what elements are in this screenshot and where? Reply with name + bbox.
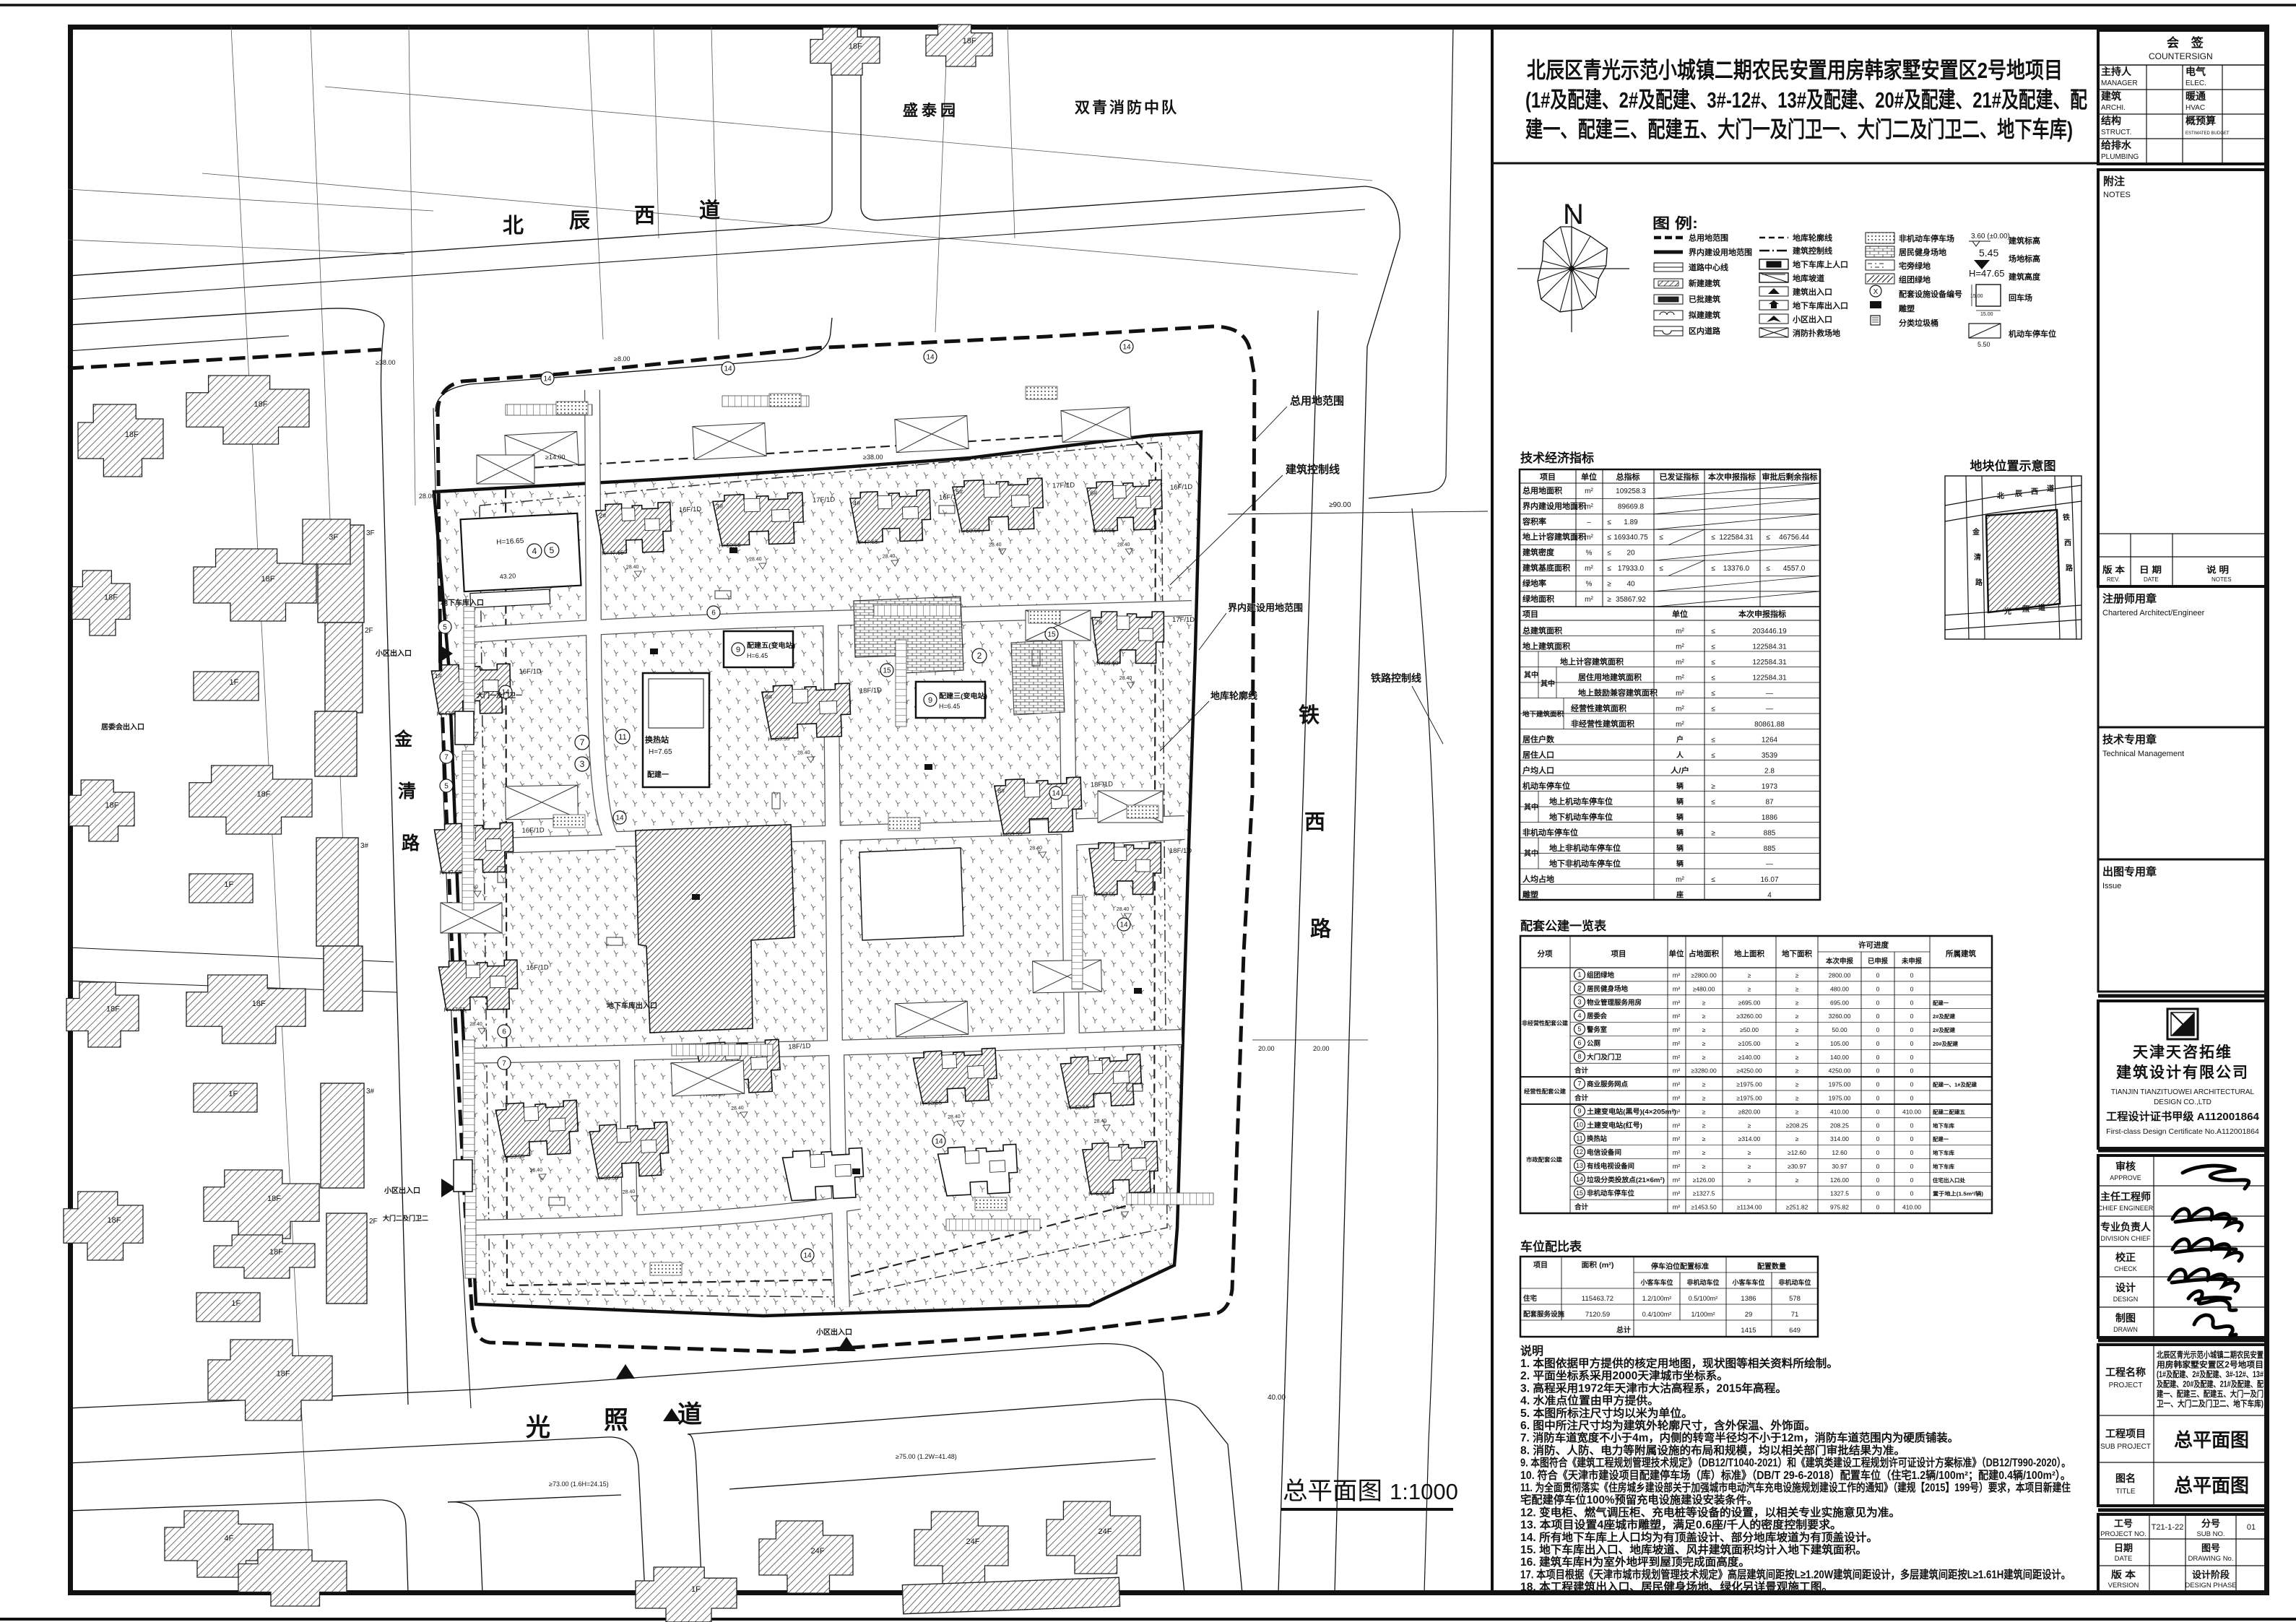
svg-text:停车泊位配置标准: 停车泊位配置标准 [1651, 1262, 1709, 1271]
svg-text:建一、配建三、配建五、大门一及门卫一、大门二及门卫二、地下车: 建一、配建三、配建五、大门一及门卫一、大门二及门卫二、地下车库) [1525, 117, 2073, 142]
svg-text:组团绿地: 组团绿地 [1899, 274, 1931, 285]
svg-text:设计: 设计 [2115, 1282, 2136, 1293]
svg-text:地上面积: 地上面积 [1734, 949, 1764, 958]
svg-text:H=47.65: H=47.65 [1969, 268, 2005, 279]
svg-text:建筑标高: 建筑标高 [2009, 235, 2040, 246]
svg-text:0: 0 [1910, 1176, 1914, 1184]
svg-text:地下面积: 地下面积 [1782, 949, 1812, 958]
svg-text:5.45: 5.45 [1979, 247, 1998, 259]
svg-text:路: 路 [1310, 917, 1332, 941]
svg-text:1F: 1F [691, 1585, 701, 1594]
svg-text:—: — [1766, 690, 1773, 698]
svg-text:m²: m² [1673, 1067, 1681, 1075]
svg-text:17F/1D: 17F/1D [813, 495, 836, 504]
svg-text:15.00: 15.00 [1980, 312, 1993, 317]
svg-text:0: 0 [1876, 1190, 1880, 1197]
svg-text:885: 885 [1764, 845, 1776, 853]
svg-text:6: 6 [711, 610, 716, 617]
svg-text:地下建筑面积: 地下建筑面积 [1522, 710, 1564, 719]
svg-text:0: 0 [1910, 1040, 1914, 1047]
svg-text:清: 清 [398, 781, 416, 802]
svg-text:5: 5 [444, 783, 449, 791]
svg-text:铁: 铁 [2063, 513, 2070, 522]
svg-text:7120.59: 7120.59 [1585, 1311, 1610, 1319]
svg-text:203446.19: 203446.19 [1752, 628, 1787, 636]
svg-text:其中: 其中 [1524, 670, 1538, 680]
svg-text:18F: 18F [125, 430, 139, 439]
svg-text:附注: 附注 [2103, 175, 2125, 188]
svg-text:0: 0 [1876, 1095, 1880, 1102]
svg-text:建筑密度: 建筑密度 [1522, 547, 1555, 558]
svg-text:PLUMBING: PLUMBING [2101, 153, 2139, 161]
svg-text:总平面图: 总平面图 [2174, 1429, 2249, 1451]
svg-text:NOTES: NOTES [2103, 191, 2131, 199]
svg-text:DRAWN: DRAWN [2113, 1326, 2138, 1333]
svg-text:13. 本项目设置4座城市雕塑，满足0.6座/千人的密度控制: 13. 本项目设置4座城市雕塑，满足0.6座/千人的密度控制要求。 [1520, 1518, 1842, 1532]
svg-text:18F/1D: 18F/1D [1169, 847, 1192, 855]
svg-text:DATE: DATE [2115, 1555, 2133, 1563]
svg-text:≤: ≤ [1659, 534, 1663, 542]
svg-text:0: 0 [1876, 1122, 1880, 1129]
svg-text:28.40: 28.40 [948, 1114, 961, 1120]
svg-text:≥: ≥ [1748, 1122, 1751, 1129]
svg-text:校正: 校正 [2115, 1252, 2136, 1263]
svg-text:480.00: 480.00 [1830, 985, 1849, 992]
svg-text:≥: ≥ [1795, 1026, 1799, 1033]
svg-text:场地标高: 场地标高 [2009, 253, 2040, 264]
svg-text:图名: 图名 [2115, 1473, 2136, 1484]
svg-text:项目: 项目 [1522, 610, 1538, 619]
svg-text:m²: m² [1673, 1026, 1681, 1033]
svg-text:80861.88: 80861.88 [1754, 721, 1785, 729]
svg-text:2#及配建: 2#及配建 [1933, 1012, 1956, 1020]
svg-text:11. 为全面贯彻落实《住房城乡建设部关于加强城市电动汽车充: 11. 为全面贯彻落实《住房城乡建设部关于加强城市电动汽车充电设施规划建设工作的… [1520, 1480, 2071, 1494]
svg-text:m²: m² [1585, 596, 1593, 604]
svg-text:1415: 1415 [1741, 1327, 1756, 1335]
svg-text:01: 01 [2247, 1523, 2256, 1532]
svg-text:m²: m² [1673, 1095, 1681, 1102]
svg-text:9: 9 [736, 646, 740, 654]
svg-text:合计: 合计 [1574, 1203, 1588, 1212]
svg-text:≥140.00: ≥140.00 [1738, 1054, 1761, 1061]
svg-text:≤: ≤ [1711, 565, 1715, 573]
svg-text:宅配建停车位100%预留充电设施建设安装条件。: 宅配建停车位100%预留充电设施建设安装条件。 [1520, 1493, 1758, 1506]
svg-text:≤: ≤ [1711, 690, 1715, 698]
svg-text:≥: ≥ [1702, 1122, 1706, 1129]
svg-text:≥50.00: ≥50.00 [1740, 1026, 1759, 1033]
svg-text:14: 14 [1576, 1176, 1583, 1183]
svg-text:居住用地建筑面积: 居住用地建筑面积 [1578, 672, 1642, 682]
svg-text:3: 3 [580, 759, 585, 769]
svg-text:35867.92: 35867.92 [1616, 596, 1646, 604]
svg-text:5. 本图所标注尺寸均以米为单位。: 5. 本图所标注尺寸均以米为单位。 [1520, 1406, 1693, 1420]
svg-text:3. 高程采用1972年天津市大沽高程系，2015年高程。: 3. 高程采用1972年天津市大沽高程系，2015年高程。 [1520, 1381, 1787, 1395]
svg-text:≤: ≤ [1659, 565, 1663, 573]
svg-text:商业服务网点: 商业服务网点 [1587, 1080, 1628, 1089]
svg-text:≥: ≥ [1702, 999, 1706, 1006]
svg-text:4557.0: 4557.0 [1783, 565, 1806, 573]
svg-text:122584.31: 122584.31 [1752, 675, 1787, 682]
svg-text:配建一、1#及配建: 配建一、1#及配建 [1933, 1081, 1977, 1088]
svg-text:m²: m² [1673, 1081, 1681, 1088]
svg-text:15.00: 15.00 [1970, 294, 1983, 299]
svg-text:辆: 辆 [1676, 781, 1684, 791]
svg-text:2. 平面坐标系采用2000天津城市坐标系。: 2. 平面坐标系采用2000天津城市坐标系。 [1520, 1369, 1728, 1382]
svg-text:≥: ≥ [1795, 985, 1799, 992]
svg-text:140.00: 140.00 [1830, 1054, 1849, 1061]
svg-text:非机动车停车位: 非机动车停车位 [1522, 828, 1578, 838]
svg-text:居民健身场地: 居民健身场地 [1899, 247, 1946, 257]
svg-text:18F/1D: 18F/1D [788, 1042, 811, 1051]
svg-text:容积率: 容积率 [1522, 516, 1546, 526]
svg-text:PROJECT: PROJECT [2109, 1382, 2143, 1389]
svg-text:2: 2 [977, 651, 982, 661]
svg-text:辰: 辰 [569, 209, 590, 233]
svg-text:本次申报指标: 本次申报指标 [1708, 472, 1756, 482]
svg-text:ELEC.: ELEC. [2185, 79, 2206, 87]
svg-text:单位: 单位 [1672, 609, 1688, 619]
svg-text:20.00: 20.00 [1258, 1045, 1275, 1052]
svg-text:11: 11 [618, 733, 626, 742]
svg-text:道: 道 [677, 1401, 702, 1428]
svg-text:CHIEF ENGINEER: CHIEF ENGINEER [2098, 1205, 2154, 1212]
svg-text:PROJECT NO.: PROJECT NO. [2100, 1530, 2146, 1538]
svg-text:≤: ≤ [1711, 659, 1715, 667]
svg-text:20.00: 20.00 [1313, 1045, 1330, 1052]
svg-text:m²: m² [1673, 1163, 1681, 1170]
svg-text:VERSION: VERSION [2108, 1582, 2139, 1590]
svg-text:18F: 18F [106, 1005, 120, 1014]
svg-text:北辰区青光示范小城镇二期农民安置用房韩家墅安置区2号地项目: 北辰区青光示范小城镇二期农民安置用房韩家墅安置区2号地项目 [1527, 58, 2063, 83]
svg-text:28.40: 28.40 [731, 1106, 744, 1111]
svg-text:≤: ≤ [1607, 550, 1611, 558]
svg-text:≥: ≥ [1748, 985, 1751, 992]
svg-text:16F/1D: 16F/1D [526, 963, 548, 972]
svg-text:≤: ≤ [1711, 628, 1715, 636]
svg-text:≥: ≥ [1607, 596, 1611, 604]
svg-text:208.25: 208.25 [1830, 1122, 1849, 1129]
svg-text:≥: ≥ [1795, 972, 1799, 979]
svg-text:≥: ≥ [1702, 1095, 1706, 1102]
svg-text:4. 水准点位置由甲方提供。: 4. 水准点位置由甲方提供。 [1520, 1394, 1659, 1408]
svg-text:地下车库出入口: 地下车库出入口 [607, 1001, 657, 1010]
svg-text:18F: 18F [254, 400, 268, 409]
svg-text:DRAWING No.: DRAWING No. [2188, 1555, 2234, 1563]
svg-text:工程设计证书甲级 A112001864: 工程设计证书甲级 A112001864 [2106, 1110, 2260, 1123]
svg-text:18F: 18F [267, 1194, 281, 1203]
svg-text:0: 0 [1876, 985, 1880, 992]
svg-text:3539: 3539 [1762, 752, 1778, 760]
svg-text:18F: 18F [277, 1369, 290, 1378]
svg-text:7#: 7# [1095, 619, 1102, 626]
svg-text:0: 0 [1876, 1135, 1880, 1142]
svg-text:H=50.60: H=50.60 [958, 527, 981, 534]
svg-text:1975.00: 1975.00 [1829, 1095, 1851, 1102]
svg-text:18F: 18F [108, 1216, 121, 1225]
svg-text:≥: ≥ [1702, 1149, 1706, 1156]
svg-text:X: X [1873, 288, 1879, 296]
svg-text:T21-1-22: T21-1-22 [2152, 1523, 2184, 1532]
svg-text:18F: 18F [849, 43, 862, 51]
svg-text:6. 图中所注尺寸均为建筑外轮廓尺寸，含外保温、外饰面。: 6. 图中所注尺寸均为建筑外轮廓尺寸，含外保温、外饰面。 [1520, 1418, 1816, 1432]
svg-text:0: 0 [1876, 972, 1880, 979]
svg-text:≥: ≥ [1795, 1176, 1799, 1184]
svg-text:金: 金 [1972, 527, 1980, 537]
svg-text:m²: m² [1673, 1122, 1681, 1129]
svg-text:CHECK: CHECK [2114, 1265, 2137, 1272]
svg-text:≥695.00: ≥695.00 [1738, 999, 1761, 1006]
svg-text:建筑控制线: 建筑控制线 [1286, 463, 1340, 476]
svg-text:居住户数: 居住户数 [1522, 734, 1555, 745]
svg-text:≥251.82: ≥251.82 [1786, 1204, 1808, 1211]
svg-text:12: 12 [1576, 1148, 1583, 1155]
svg-text:≥8.00: ≥8.00 [614, 355, 630, 363]
svg-text:18F: 18F [105, 801, 119, 810]
svg-text:辆: 辆 [1676, 859, 1684, 869]
svg-text:2F: 2F [369, 1218, 378, 1226]
svg-text:警务室: 警务室 [1587, 1025, 1607, 1034]
svg-text:≥: ≥ [1748, 1149, 1751, 1156]
svg-text:9#: 9# [765, 693, 772, 701]
svg-text:12.60: 12.60 [1832, 1149, 1847, 1156]
svg-text:辆: 辆 [1676, 843, 1684, 853]
svg-text:12. 变电柜、燃气调压柜、充电桩等设备的设置，以相关专业实: 12. 变电柜、燃气调压柜、充电桩等设备的设置，以相关专业实施意见为准。 [1520, 1505, 1900, 1519]
svg-text:0: 0 [1910, 999, 1914, 1006]
svg-text:日 期: 日 期 [2139, 564, 2162, 575]
svg-text:14: 14 [1052, 790, 1060, 798]
svg-text:车位配比表: 车位配比表 [1520, 1239, 1582, 1254]
svg-text:≤: ≤ [1711, 534, 1715, 542]
svg-text:4#: 4# [853, 500, 860, 507]
svg-text:地下非机动车停车位: 地下非机动车停车位 [1549, 859, 1621, 869]
svg-text:概预算: 概预算 [2185, 115, 2216, 126]
svg-text:铁路控制线: 铁路控制线 [1371, 672, 1421, 684]
svg-text:m²: m² [1673, 1176, 1681, 1184]
svg-text:0: 0 [1876, 1067, 1880, 1075]
svg-text:6: 6 [1577, 1039, 1581, 1046]
svg-text:18F/1D: 18F/1D [859, 687, 883, 695]
svg-text:西: 西 [1304, 811, 1325, 834]
svg-text:0.5/100m²: 0.5/100m² [1689, 1295, 1718, 1302]
svg-text:界内建设用地范围: 界内建设用地范围 [1689, 247, 1752, 257]
svg-text:7: 7 [444, 754, 449, 762]
svg-text:314.00: 314.00 [1830, 1135, 1849, 1142]
svg-text:配建一: 配建一 [1933, 1135, 1949, 1142]
svg-text:H=47.65: H=47.65 [1093, 527, 1115, 534]
svg-text:≥: ≥ [1795, 1067, 1799, 1075]
svg-text:换热站: 换热站 [645, 734, 669, 745]
svg-text:m²: m² [1676, 706, 1684, 714]
svg-text:0: 0 [1876, 999, 1880, 1006]
svg-text:STRUCT.: STRUCT. [2101, 129, 2131, 136]
svg-text:3#: 3# [366, 1088, 375, 1096]
svg-text:H=7.65: H=7.65 [649, 748, 672, 756]
svg-text:机动车停车位: 机动车停车位 [2009, 329, 2056, 339]
svg-text:地上计容建筑面积: 地上计容建筑面积 [1560, 656, 1624, 667]
svg-text:≥1134.00: ≥1134.00 [1737, 1204, 1762, 1211]
svg-text:Chartered Architect/Engineer: Chartered Architect/Engineer [2102, 609, 2205, 617]
svg-text:光: 光 [2003, 607, 2011, 616]
svg-text:≥208.25: ≥208.25 [1786, 1122, 1808, 1129]
svg-text:m²: m² [1585, 534, 1593, 542]
svg-text:m²: m² [1585, 503, 1593, 511]
svg-text:N: N [1563, 199, 1584, 230]
svg-text:2#及配建: 2#及配建 [1933, 1026, 1956, 1033]
svg-text:10: 10 [1576, 1121, 1583, 1128]
svg-text:≥75.00 (1.2W=41.48): ≥75.00 (1.2W=41.48) [896, 1453, 957, 1460]
svg-text:大门二及门卫二: 大门二及门卫二 [383, 1214, 428, 1222]
svg-text:0: 0 [1876, 1176, 1880, 1184]
svg-text:非机动车停车场: 非机动车停车场 [1899, 233, 1954, 243]
svg-text:29: 29 [1745, 1311, 1753, 1319]
svg-text:APPROVE: APPROVE [2110, 1174, 2141, 1181]
svg-text:0: 0 [1910, 1081, 1914, 1088]
svg-text:1.89: 1.89 [1624, 519, 1638, 526]
svg-text:区内道路: 区内道路 [1689, 326, 1721, 336]
svg-text:≥: ≥ [1795, 1040, 1799, 1047]
svg-text:m²: m² [1676, 721, 1684, 729]
svg-text:≥: ≥ [1795, 1095, 1799, 1102]
svg-text:Technical Management: Technical Management [2102, 750, 2184, 758]
svg-text:建一、配建三、配建五、大门一及门: 建一、配建三、配建五、大门一及门 [2157, 1389, 2263, 1399]
svg-text:1: 1 [1577, 971, 1581, 979]
svg-text:–: – [1587, 519, 1591, 526]
svg-text:17F/1D: 17F/1D [1172, 616, 1195, 624]
svg-text:3: 3 [1577, 998, 1581, 1005]
svg-text:0: 0 [1876, 1054, 1880, 1061]
svg-text:18F: 18F [269, 1248, 283, 1257]
svg-text:辆: 辆 [1676, 812, 1684, 822]
svg-text:4F: 4F [225, 1534, 234, 1543]
svg-text:总平面图: 总平面图 [2174, 1475, 2249, 1496]
svg-text:版 本: 版 本 [2102, 564, 2125, 575]
svg-text:本次申报: 本次申报 [1826, 957, 1853, 966]
svg-text:m²: m² [1676, 876, 1684, 884]
svg-text:H=53.55: H=53.55 [919, 1099, 942, 1107]
svg-text:人/户: 人/户 [1671, 766, 1689, 776]
svg-text:物业管理服务用房: 物业管理服务用房 [1587, 998, 1642, 1007]
svg-text:410.00: 410.00 [1830, 1108, 1849, 1115]
svg-text:项目: 项目 [1540, 472, 1556, 482]
svg-text:主持人: 主持人 [2101, 66, 2132, 77]
svg-text:30.97: 30.97 [1832, 1163, 1847, 1170]
svg-text:m²: m² [1673, 972, 1681, 979]
svg-text:18F: 18F [261, 575, 275, 584]
svg-text:注册师用章: 注册师用章 [2102, 592, 2157, 605]
svg-text:审核: 审核 [2115, 1161, 2136, 1172]
svg-text:0: 0 [1910, 1095, 1914, 1102]
svg-text:24F: 24F [811, 1547, 825, 1556]
svg-text:工程名称: 工程名称 [2105, 1366, 2146, 1378]
svg-text:28.40: 28.40 [1113, 1205, 1126, 1211]
svg-text:分号: 分号 [2201, 1518, 2220, 1529]
svg-text:TIANJIN TIANZITUOWEI ARCHITECT: TIANJIN TIANZITUOWEI ARCHITECTURAL [2111, 1088, 2255, 1096]
svg-text:≥12.60: ≥12.60 [1788, 1149, 1806, 1156]
svg-text:≥: ≥ [1748, 1163, 1751, 1170]
svg-text:地库坡道: 地库坡道 [1793, 273, 1824, 283]
svg-text:m²: m² [1676, 659, 1684, 667]
svg-text:0: 0 [1910, 1012, 1914, 1020]
svg-text:道: 道 [699, 199, 720, 222]
svg-text:m²: m² [1673, 1204, 1681, 1211]
svg-text:3#: 3# [360, 842, 369, 850]
svg-text:≤: ≤ [1711, 737, 1715, 745]
svg-text:1264: 1264 [1762, 737, 1778, 745]
svg-text:17933.0: 17933.0 [1618, 565, 1645, 573]
svg-text:天津天咨拓维: 天津天咨拓维 [2133, 1044, 2232, 1061]
svg-text:已发证指标: 已发证指标 [1660, 472, 1699, 482]
svg-text:面积 (m²): 面积 (m²) [1582, 1260, 1614, 1270]
svg-text:占地面积: 占地面积 [1689, 949, 1719, 958]
svg-text:土建变电站(红号): 土建变电站(红号) [1587, 1121, 1642, 1129]
svg-text:28.40: 28.40 [749, 557, 762, 563]
svg-text:0.4/100m²: 0.4/100m² [1642, 1311, 1672, 1318]
svg-text:版 本: 版 本 [2111, 1569, 2136, 1580]
svg-text:配建一: 配建一 [647, 770, 669, 779]
svg-text:经营性配套公建: 经营性配套公建 [1524, 1088, 1567, 1095]
svg-text:28.40: 28.40 [626, 565, 639, 571]
svg-text:16. 建筑车库H为室外地坪到屋顶完成面高度。: 16. 建筑车库H为室外地坪到屋顶完成面高度。 [1520, 1555, 1750, 1569]
svg-text:所属建筑: 所属建筑 [1946, 949, 1976, 958]
svg-text:地库轮廓线: 地库轮廓线 [1793, 233, 1832, 243]
svg-text:≥4250.00: ≥4250.00 [1736, 1067, 1762, 1075]
svg-text:地下车库上人口: 地下车库上人口 [1793, 259, 1848, 269]
svg-text:配建一: 配建一 [1933, 999, 1949, 1006]
svg-text:3F: 3F [329, 533, 338, 542]
svg-text:1327.5: 1327.5 [1830, 1190, 1849, 1197]
svg-text:28.40: 28.40 [883, 554, 896, 560]
svg-text:m²: m² [1673, 999, 1681, 1006]
svg-text:清: 清 [1974, 552, 1981, 562]
svg-text:≥: ≥ [1795, 1012, 1799, 1020]
svg-text:出图专用章: 出图专用章 [2102, 865, 2157, 878]
svg-text:0: 0 [1876, 1026, 1880, 1033]
svg-text:辆: 辆 [1676, 797, 1684, 807]
svg-text:46756.44: 46756.44 [1779, 534, 1809, 542]
svg-text:1. 本图依据甲方提供的核定用地图，现状图等相关资料所绘制。: 1. 本图依据甲方提供的核定用地图，现状图等相关资料所绘制。 [1520, 1356, 1838, 1370]
svg-text:≥: ≥ [1702, 1026, 1706, 1033]
svg-text:≥820.00: ≥820.00 [1738, 1108, 1761, 1115]
svg-text:40.00: 40.00 [1268, 1394, 1286, 1402]
svg-text:地上非机动车停车位: 地上非机动车停车位 [1549, 843, 1621, 853]
svg-text:居住人口: 居住人口 [1522, 750, 1554, 760]
svg-text:住宅: 住宅 [1523, 1294, 1537, 1303]
svg-text:≥: ≥ [1748, 972, 1751, 979]
svg-text:总用地面积: 总用地面积 [1522, 485, 1562, 495]
svg-text:0: 0 [1910, 1149, 1914, 1156]
svg-text:20#及配建: 20#及配建 [1933, 1040, 1958, 1047]
svg-text:695.00: 695.00 [1830, 999, 1849, 1006]
svg-text:绿地率: 绿地率 [1522, 578, 1546, 588]
svg-text:居委会出入口: 居委会出入口 [101, 722, 144, 732]
svg-text:居民健身场地: 居民健身场地 [1587, 984, 1628, 993]
svg-text:照: 照 [2022, 605, 2029, 614]
svg-text:置于地上(1.5m²/辆): 置于地上(1.5m²/辆) [1933, 1190, 1984, 1197]
svg-text:6#: 6# [1090, 489, 1097, 496]
svg-text:非机动车位: 非机动车位 [1779, 1278, 1811, 1286]
svg-text:金: 金 [394, 729, 413, 750]
svg-text:m²: m² [1673, 1040, 1681, 1047]
svg-text:18F: 18F [252, 999, 266, 1008]
svg-text:20: 20 [1626, 550, 1635, 558]
svg-text:24F: 24F [1099, 1527, 1112, 1536]
svg-text:地下车库: 地下车库 [1933, 1122, 1954, 1129]
svg-text:≤: ≤ [1711, 752, 1715, 760]
svg-text:(1#及配建、2#及配建、3#-12#、13#: (1#及配建、2#及配建、3#-12#、13# [2157, 1369, 2263, 1379]
svg-text:地上机动车停车位: 地上机动车停车位 [1549, 797, 1613, 807]
svg-text:0: 0 [1910, 1026, 1914, 1033]
svg-text:新建建筑: 新建建筑 [1689, 278, 1720, 288]
